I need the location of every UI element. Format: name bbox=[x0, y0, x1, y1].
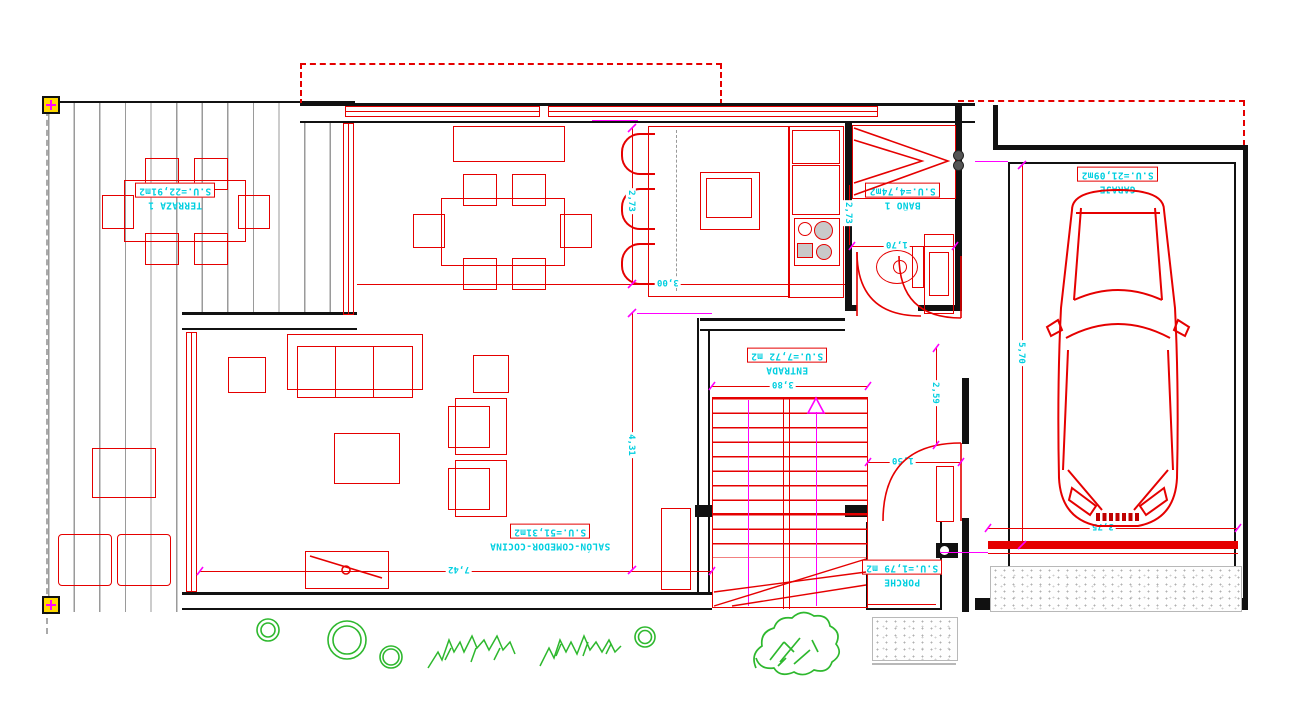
drawing-overlay bbox=[0, 0, 1292, 721]
door-swing-entrance bbox=[883, 443, 961, 521]
shower-icon bbox=[854, 128, 948, 195]
tree-icon bbox=[754, 612, 839, 674]
door-swing-bath bbox=[857, 252, 921, 316]
tv-icon bbox=[310, 556, 382, 578]
dim-ticks bbox=[197, 124, 1241, 575]
stairs-arrow-icon bbox=[808, 398, 824, 413]
floor-plan-canvas: 2,73 3,00 4,31 7,42 3,80 2,59 1,50 1,70 … bbox=[0, 0, 1292, 721]
shrub-icon bbox=[428, 636, 621, 668]
stairs-winder-lines bbox=[714, 559, 866, 606]
car-icon bbox=[1047, 190, 1189, 526]
door-swing-hall-top bbox=[899, 256, 961, 318]
